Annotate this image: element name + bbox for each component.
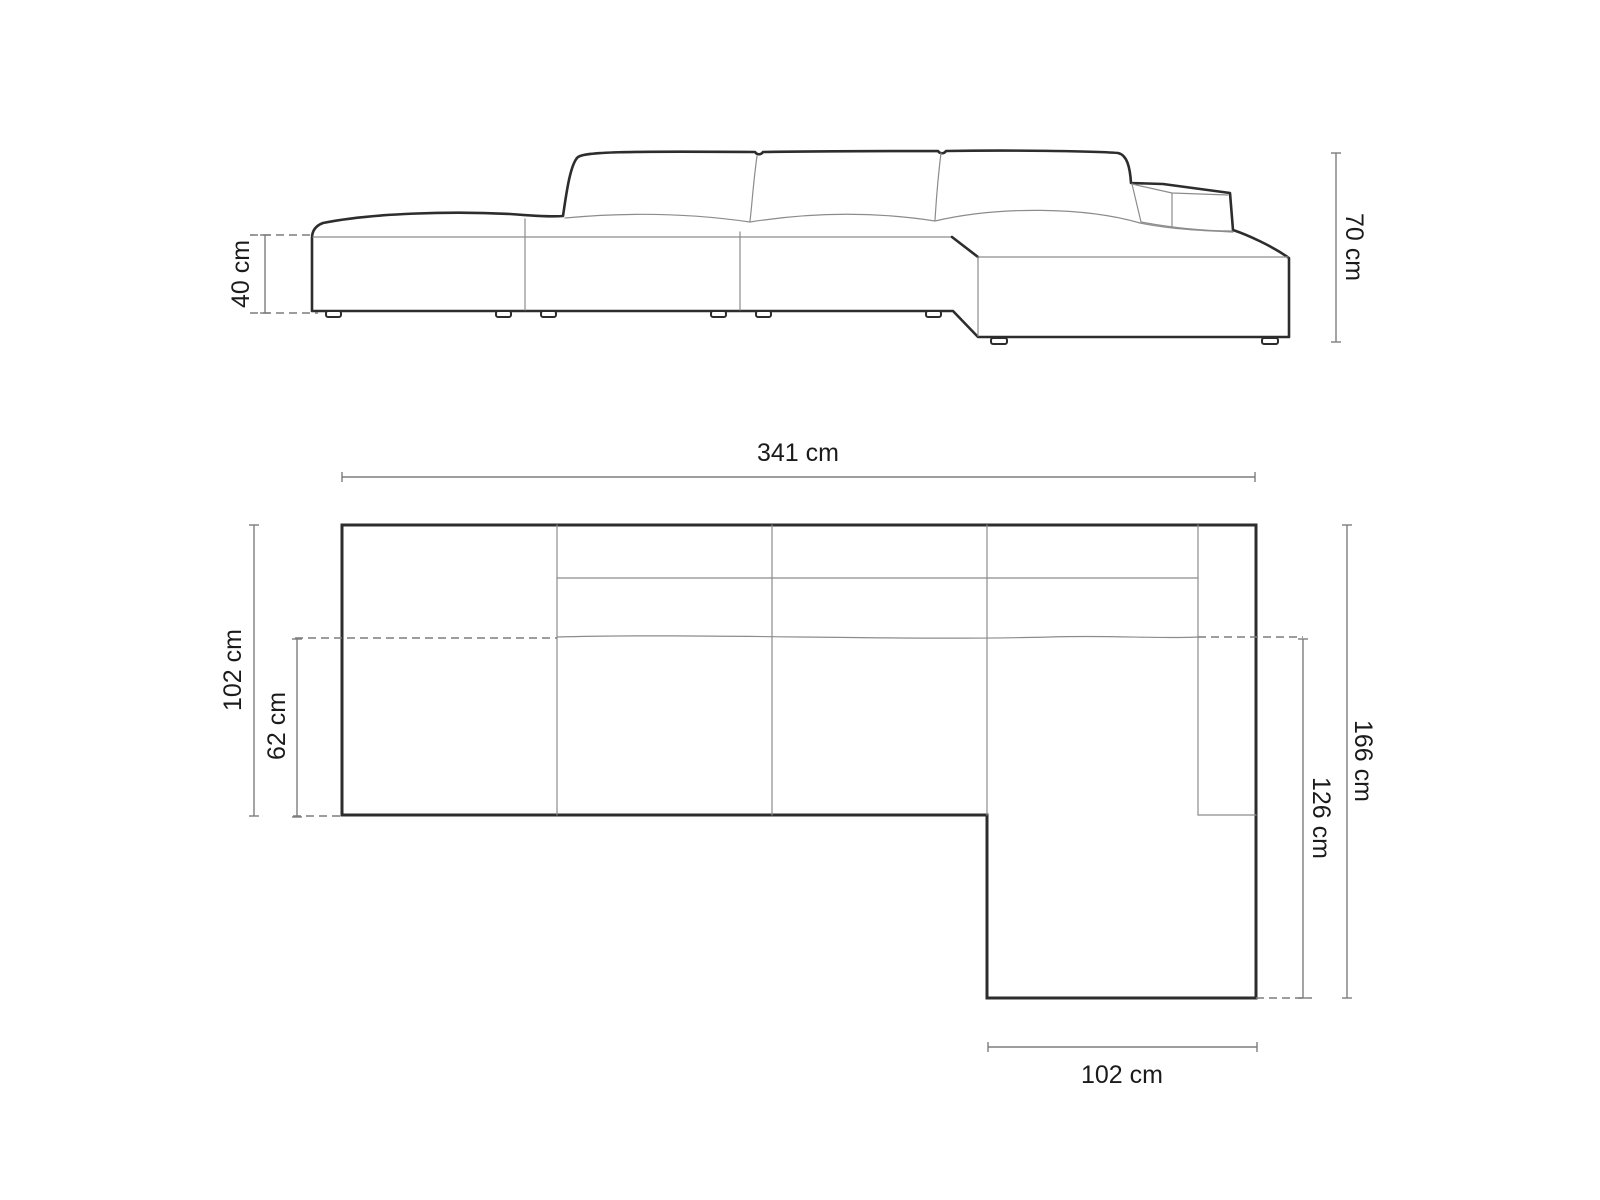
sofa-foot (926, 311, 941, 317)
dimension-label-overall-depth: 102 cm (219, 629, 247, 711)
sofa-dimension-diagram: 40 cm 70 cm (0, 0, 1600, 1200)
dimension-label-seat-height: 40 cm (227, 240, 255, 308)
dimension-label-seat-depth: 62 cm (263, 692, 291, 760)
dimension-label-overall-width: 341 cm (757, 439, 839, 467)
overall-height-dimension: 70 cm (1331, 153, 1368, 342)
sofa-foot (326, 311, 341, 317)
chaise-extension-depth-dimension: 126 cm (1298, 639, 1335, 998)
overall-depth-dimension: 102 cm (219, 525, 259, 816)
sofa-plan-outline (342, 525, 1256, 998)
dimension-label-chaise-extension-depth: 126 cm (1307, 777, 1335, 859)
overall-width-dimension: 341 cm (342, 439, 1255, 482)
seat-depth-dimension: 62 cm (263, 639, 302, 817)
sofa-foot (711, 311, 726, 317)
dimension-label-overall-height: 70 cm (1340, 213, 1368, 281)
chaise-overall-depth-dimension: 166 cm (1342, 525, 1377, 998)
dimension-label-chaise-width: 102 cm (1081, 1061, 1163, 1089)
seat-height-dimension: 40 cm (227, 235, 318, 313)
dimension-label-chaise-overall-depth: 166 cm (1349, 720, 1377, 802)
side-elevation-view: 40 cm 70 cm (227, 151, 1368, 344)
sofa-foot (1262, 338, 1278, 344)
sofa-foot (496, 311, 511, 317)
chaise-width-dimension: 102 cm (988, 1042, 1257, 1089)
sofa-side-silhouette (312, 151, 1289, 337)
sofa-foot (991, 338, 1007, 344)
diagram-canvas: 40 cm 70 cm (0, 0, 1600, 1200)
sofa-foot (541, 311, 556, 317)
top-plan-view: 341 cm 102 cm 62 cm 166 cm (219, 439, 1377, 1089)
sofa-foot (756, 311, 771, 317)
